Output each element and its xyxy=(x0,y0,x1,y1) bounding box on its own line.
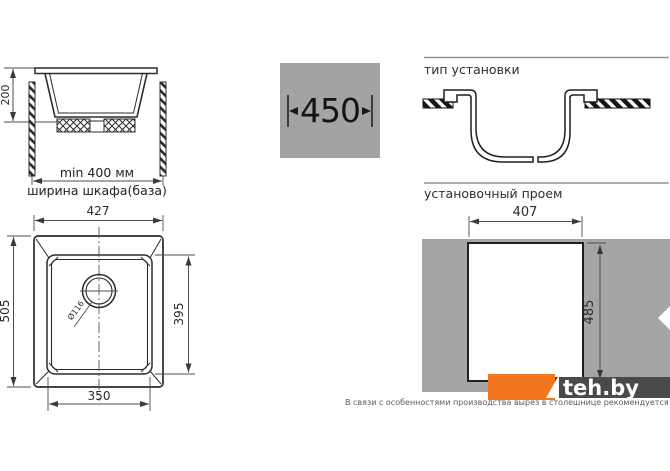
cabinet-wall-right xyxy=(160,82,166,176)
base-hatch-right xyxy=(104,119,135,132)
watermark-site-label: teh.by xyxy=(563,376,639,400)
bowl-inner-wall xyxy=(50,74,143,114)
bowl-inner-outline xyxy=(52,260,148,370)
cutout-opening xyxy=(468,243,583,381)
technical-drawing-canvas: 200 min 400 мм ширина шкафа(база) 450 ти… xyxy=(0,0,670,471)
cabinet-width-label: ширина шкафа(база) xyxy=(27,183,167,198)
bowl-width-label: 350 xyxy=(88,389,111,403)
badge-size-label: 450 xyxy=(300,91,360,130)
drain-diameter-label: Ø116 xyxy=(65,299,86,322)
side-view-drawing: 200 min 400 мм ширина шкафа(база) xyxy=(0,68,167,198)
min-width-label: min 400 мм xyxy=(60,165,134,180)
cutout-width-label: 407 xyxy=(513,205,538,220)
cabinet-size-badge: 450 xyxy=(280,63,380,158)
top-view-drawing: 427 505 Ø116 395 350 xyxy=(0,204,195,411)
sink-profile-left xyxy=(444,90,533,162)
installation-type-section: тип установки xyxy=(423,58,669,163)
installation-title: тип установки xyxy=(424,62,520,77)
drain-fitting xyxy=(90,121,104,132)
sink-dimension-sheet: 200 min 400 мм ширина шкафа(база) 450 ти… xyxy=(0,0,670,471)
cutout-title: установочный проем xyxy=(424,186,562,201)
overall-width-label: 427 xyxy=(87,204,110,218)
base-hatch-left xyxy=(57,119,90,132)
bowl-depth-label: 395 xyxy=(172,303,186,326)
watermark-logo-block xyxy=(488,374,555,400)
bowl-outer-wall xyxy=(45,74,147,118)
sink-outline xyxy=(34,236,163,387)
cutout-height-label: 485 xyxy=(582,300,597,325)
cutout-section: установочный проем 407 485 xyxy=(422,183,670,392)
depth-dim-label: 200 xyxy=(0,85,12,106)
bowl-outline xyxy=(47,255,152,374)
sink-profile-right xyxy=(538,90,597,162)
production-footnote: В связи с особенностями производства выр… xyxy=(345,398,670,407)
watermark: teh.by xyxy=(488,374,670,400)
cabinet-wall-left xyxy=(29,82,35,176)
overall-depth-label: 505 xyxy=(0,300,12,323)
sink-rim xyxy=(35,68,157,74)
